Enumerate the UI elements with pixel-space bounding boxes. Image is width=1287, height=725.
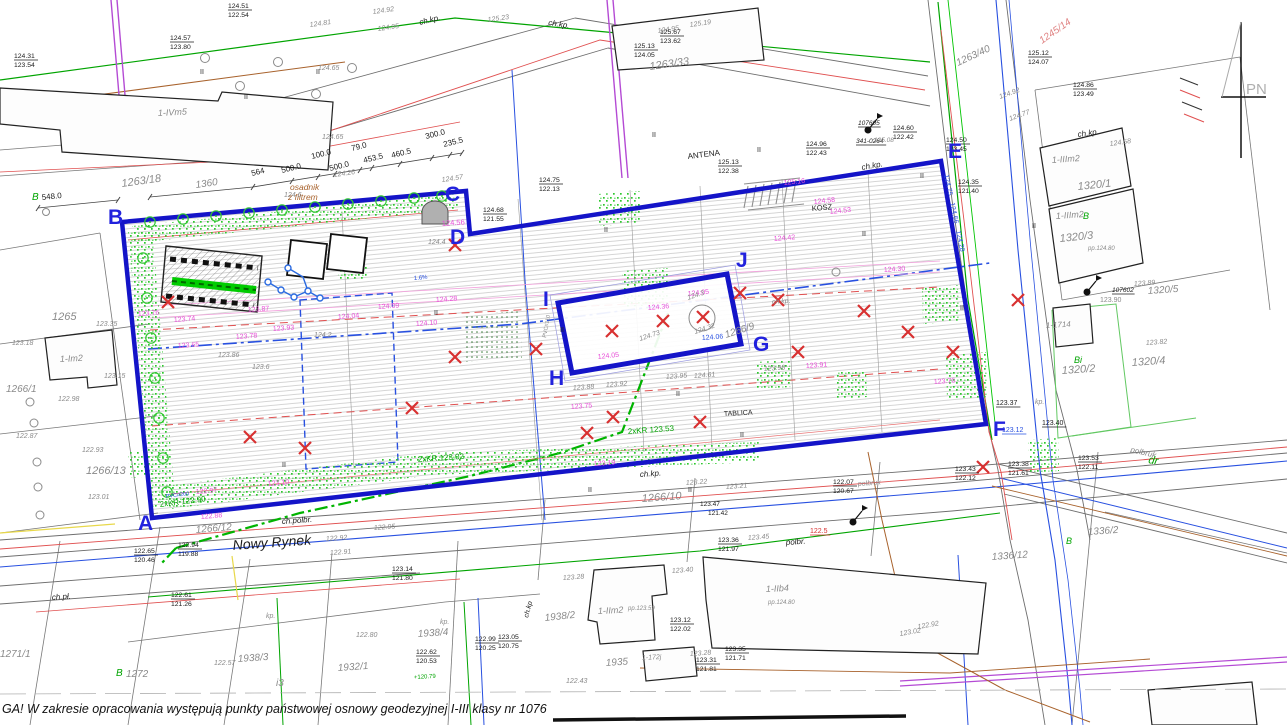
svg-text:122.12: 122.12 (955, 475, 976, 482)
elevation-pair: 124.57123.80 (170, 35, 194, 51)
survey-map: IIIIIIIIIIIIIIIIIIIIIIIIIIIIIIIIII Nowy … (0, 0, 1287, 725)
map-label: 122.87 (16, 433, 39, 440)
svg-text:+120.79: +120.79 (414, 674, 437, 681)
map-label: 1938/3 (237, 652, 269, 665)
map-note: GA! W zakresie opracowania występują pun… (2, 702, 547, 716)
svg-text:122.93: 122.93 (82, 447, 104, 454)
svg-text:123.43: 123.43 (955, 466, 976, 473)
svg-text:121.42: 121.42 (708, 510, 728, 517)
svg-text:B: B (1066, 536, 1072, 546)
boundary-letter-H: H (549, 367, 564, 390)
svg-text:123.49: 123.49 (1073, 91, 1094, 98)
svg-text:121.55: 121.55 (483, 216, 504, 223)
svg-text:123.54: 123.54 (14, 62, 35, 69)
svg-text:123.80: 123.80 (170, 44, 191, 51)
svg-text:122.88: 122.88 (201, 512, 223, 521)
elevation-pair: 124.35121.40 (958, 179, 982, 195)
svg-text:B: B (1083, 211, 1089, 221)
map-label: 123.21 (726, 483, 748, 491)
svg-text:564: 564 (250, 166, 266, 178)
svg-text:dr: dr (1147, 454, 1160, 468)
svg-text:1266/10: 1266/10 (641, 490, 682, 505)
svg-text:123.92: 123.92 (606, 381, 628, 389)
map-label: kp. (440, 619, 449, 626)
map-label: ch.kp. (548, 18, 570, 30)
svg-text:123.35: 123.35 (725, 646, 746, 653)
boundary-letter-G: G (753, 333, 769, 356)
boundary-letter-A: A (138, 512, 153, 535)
svg-text:235.5: 235.5 (442, 135, 464, 149)
map-label: Bi (1074, 355, 1083, 365)
svg-text:124.95: 124.95 (377, 23, 399, 33)
svg-text:122.11: 122.11 (1078, 464, 1099, 471)
svg-text:ch.pł.: ch.pł. (52, 592, 72, 602)
survey-point-icon (1084, 275, 1103, 296)
map-label: 123.74 (174, 316, 196, 324)
svg-text:124.09: 124.09 (378, 303, 400, 311)
svg-text:1272: 1272 (126, 669, 149, 680)
map-label: 1266/10 (641, 490, 682, 505)
elevation-pair: 123.31121.81 (696, 657, 720, 673)
svg-text:121.81: 121.81 (696, 666, 717, 673)
map-label: PN (1246, 81, 1267, 98)
map-label: 1-IIb4 (766, 583, 790, 594)
map-label: 124.28 (436, 296, 458, 304)
elevation-pair: 124.51122.54 (228, 3, 252, 19)
manhole-icon (236, 82, 245, 91)
ii-mark: II (920, 173, 924, 180)
map-label: 1-172j (642, 654, 662, 662)
manhole-icon (30, 419, 38, 427)
map-label: 453.5 (362, 151, 384, 165)
map-label: 123.40 (672, 567, 694, 575)
map-label: 124.6 (284, 192, 302, 199)
elevation-pair: 123.35121.71 (725, 646, 749, 662)
map-label: B (32, 192, 39, 203)
elevation-pair: 122.07120.67 (833, 479, 857, 495)
svg-text:1935: 1935 (605, 656, 628, 669)
svg-text:124.30: 124.30 (884, 266, 906, 274)
svg-text:1266/1: 1266/1 (6, 384, 37, 395)
svg-text:123.76: 123.76 (138, 310, 160, 318)
svg-text:124.2: 124.2 (314, 332, 332, 339)
svg-text:122.13: 122.13 (539, 186, 560, 193)
svg-text:1265: 1265 (52, 311, 77, 323)
map-label: 123.18 (12, 340, 34, 347)
svg-text:polbr.: polbr. (785, 537, 806, 547)
elevation-pair: 123.53122.11 (1078, 455, 1102, 471)
map-label: 1263/18 (121, 172, 163, 190)
boundary-letter-B: B (108, 206, 123, 229)
map-label: 107602 (1112, 287, 1135, 294)
map-label: ch.polbr. (282, 515, 313, 526)
map-label: 460.5 (390, 146, 412, 160)
map-label: 124.2 (314, 332, 332, 339)
svg-text:123.18: 123.18 (12, 340, 34, 347)
svg-text:123.98: 123.98 (764, 365, 786, 373)
map-label: 123.19 (594, 460, 616, 468)
elevation-pair: 124.68121.55 (483, 207, 507, 223)
svg-text:123.88: 123.88 (573, 384, 595, 392)
map-label: 123.47 (700, 501, 720, 508)
svg-text:ch.kp.: ch.kp. (772, 298, 791, 306)
svg-text:124.05: 124.05 (634, 52, 655, 59)
map-label: 123.76 (138, 310, 160, 318)
svg-text:122.91: 122.91 (330, 549, 352, 557)
svg-text:121.26: 121.26 (171, 601, 192, 608)
svg-text:121.71: 121.71 (725, 655, 746, 662)
svg-text:120.53: 120.53 (416, 658, 437, 665)
svg-text:107605: 107605 (858, 120, 880, 127)
svg-text:122.61: 122.61 (171, 592, 192, 599)
map-label: 124.10 (416, 320, 438, 328)
map-label: 122.57 (214, 660, 237, 667)
svg-text:124.65: 124.65 (318, 65, 340, 72)
map-label: 122.80 (356, 632, 378, 639)
svg-text:ch.polbr.: ch.polbr. (282, 515, 313, 526)
map-label: 123.90 (1100, 297, 1122, 304)
svg-text:1336/12: 1336/12 (991, 549, 1028, 563)
manhole-icon (312, 90, 321, 99)
manhole-icon (36, 511, 44, 519)
map-label: 123.76 (934, 378, 956, 386)
svg-text:1938/4: 1938/4 (417, 627, 449, 640)
svg-text:107602: 107602 (1112, 287, 1134, 294)
svg-text:Nowy Rynek: Nowy Rynek (232, 531, 313, 553)
svg-text:125.12: 125.12 (1028, 50, 1049, 57)
svg-text:122.43: 122.43 (566, 678, 588, 685)
svg-text:122.42: 122.42 (893, 134, 914, 141)
ii-mark: II (960, 305, 964, 312)
svg-text:123.45: 123.45 (748, 534, 770, 542)
svg-text:ch.kp.: ch.kp. (640, 469, 662, 479)
svg-text:kp.: kp. (1035, 399, 1044, 406)
svg-text:ch.kp.: ch.kp. (418, 13, 441, 27)
thick-border-line (553, 716, 906, 720)
dimension-tick (398, 161, 402, 167)
map-label: 123.78 (236, 333, 258, 341)
elevation-pair: 122.99120.25 (475, 636, 499, 652)
svg-text:123.6: 123.6 (252, 364, 270, 371)
map-label: 1266/13 (86, 465, 127, 477)
elevation-pair: 124.96122.43 (806, 141, 830, 157)
svg-text:125.13: 125.13 (634, 43, 655, 50)
map-label: ANTENA (687, 148, 721, 161)
map-label: 123.6 (252, 364, 270, 371)
ii-mark: II (757, 147, 761, 154)
ii-mark: II (862, 231, 866, 238)
svg-text:1-IVm5: 1-IVm5 (158, 106, 188, 118)
map-label: 122.98 (58, 396, 80, 403)
svg-text:124.57: 124.57 (170, 35, 191, 42)
map-label: 124.81 (309, 19, 331, 29)
svg-text:kp.: kp. (440, 619, 449, 626)
svg-text:1-IIIm2: 1-IIIm2 (1055, 209, 1084, 221)
svg-text:121.80: 121.80 (392, 575, 413, 582)
svg-text:125.08: 125.08 (874, 137, 894, 144)
map-label: 123.75 (571, 403, 593, 411)
manhole-icon (34, 483, 42, 491)
svg-text:122.92: 122.92 (326, 535, 348, 543)
small-building-1 (287, 240, 327, 279)
map-label: 122.92 (326, 535, 348, 543)
svg-text:124.31: 124.31 (14, 53, 35, 60)
svg-text:122.98: 122.98 (58, 396, 80, 403)
svg-text:124.81: 124.81 (309, 19, 331, 29)
boundary-letter-C: C (445, 183, 460, 206)
svg-text:1938/3: 1938/3 (237, 652, 269, 665)
svg-text:ch.kp: ch.kp (523, 600, 534, 618)
map-label: 123.65 (178, 342, 200, 350)
svg-text:1245/14: 1245/14 (1037, 16, 1073, 46)
boundary-letter-I: I (543, 288, 549, 311)
map-label: 123.37 (996, 400, 1020, 407)
svg-text:121.97: 121.97 (718, 546, 739, 553)
ii-mark: II (652, 132, 656, 139)
map-label: B (116, 668, 123, 679)
svg-text:122.95: 122.95 (374, 524, 396, 532)
svg-text:123.53: 123.53 (1078, 455, 1099, 462)
svg-text:125.67: 125.67 (660, 29, 681, 36)
ii-mark: II (200, 69, 204, 76)
map-label: 1-1714 (1046, 320, 1072, 330)
boundary-letter-J: J (736, 249, 748, 272)
svg-text:1336/2: 1336/2 (1087, 525, 1119, 538)
svg-text:125.13: 125.13 (718, 159, 739, 166)
map-label: 123.40 (1042, 420, 1066, 427)
svg-text:123.36: 123.36 (718, 537, 739, 544)
svg-text:Bi: Bi (1074, 355, 1083, 365)
map-label: 1-IIm2 (598, 605, 624, 616)
svg-text:1-Im2: 1-Im2 (60, 353, 84, 364)
svg-text:300.0: 300.0 (424, 127, 446, 141)
manhole-icon (33, 458, 41, 466)
map-label: 1320/4 (1131, 355, 1165, 369)
map-label: 123.86 (218, 352, 240, 359)
ii-mark: II (604, 227, 608, 234)
map-label: kp. (266, 613, 275, 620)
svg-text:123.90: 123.90 (1100, 297, 1122, 304)
elevation-pair: 124.75122.13 (539, 177, 563, 193)
svg-text:124.75: 124.75 (539, 177, 560, 184)
map-label: 122.95 (374, 524, 396, 532)
ii-mark: II (676, 391, 680, 398)
svg-text:123.93: 123.93 (273, 325, 295, 333)
svg-text:123.95: 123.95 (666, 373, 688, 381)
ii-mark: II (1032, 223, 1036, 230)
svg-text:osadnik: osadnik (290, 182, 320, 192)
map-label: 124.4 (428, 239, 446, 246)
map-label: ch.kp. (772, 298, 791, 306)
svg-text:124.51: 124.51 (228, 3, 249, 10)
svg-text:122.99: 122.99 (475, 636, 496, 643)
elevation-pair: 122.94119.88 (178, 542, 202, 558)
map-label: dr (1147, 454, 1160, 468)
edge-strokes (1180, 78, 1204, 122)
map-label: 124.61 (694, 372, 716, 380)
map-label: 1265 (52, 311, 77, 323)
svg-text:123.19: 123.19 (594, 460, 616, 468)
svg-text:pp.123.59: pp.123.59 (627, 606, 655, 612)
boundary-letter-F: F (993, 418, 1006, 441)
svg-text:124.68: 124.68 (483, 207, 504, 214)
svg-text:pp.124.80: pp.124.80 (1087, 246, 1115, 252)
svg-text:122.38: 122.38 (718, 168, 739, 175)
svg-text:i3: i3 (276, 678, 284, 689)
svg-text:1-IIb4: 1-IIb4 (766, 583, 790, 594)
map-label: 124.65 (318, 65, 340, 72)
svg-text:1-172j: 1-172j (642, 654, 662, 662)
svg-text:124.04: 124.04 (338, 313, 360, 321)
map-label: 125.08 (874, 137, 894, 144)
svg-text:120.25: 120.25 (475, 645, 496, 652)
map-label: B (1083, 211, 1089, 221)
svg-text:B: B (32, 192, 39, 203)
map-label: 123.87 (248, 306, 270, 314)
map-label: 124.06 (702, 334, 724, 342)
svg-text:124.4: 124.4 (428, 239, 446, 246)
svg-text:123.75: 123.75 (571, 403, 593, 411)
map-label: 124.65 (322, 134, 344, 141)
svg-text:123.12: 123.12 (670, 617, 691, 624)
map-label: 123.15 (104, 373, 126, 380)
map-label: 107605 (858, 120, 881, 127)
svg-text:120.67: 120.67 (833, 488, 854, 495)
svg-text:1-IIm2: 1-IIm2 (598, 605, 624, 616)
map-label: 1271/1 (0, 649, 31, 660)
map-label: 564 (250, 166, 266, 178)
ii-mark: II (244, 94, 248, 101)
elevation-pair: 124.60122.42 (893, 125, 917, 141)
svg-text:123.05: 123.05 (498, 634, 519, 641)
svg-text:123.78: 123.78 (236, 333, 258, 341)
svg-text:119.88: 119.88 (178, 551, 199, 558)
map-label: 1932/1 (337, 661, 368, 674)
map-label: B (1066, 536, 1072, 546)
map-label: 1266/1 (6, 384, 37, 395)
svg-text:123.14: 123.14 (392, 566, 413, 573)
svg-text:122.80: 122.80 (356, 632, 378, 639)
svg-text:548.0: 548.0 (41, 191, 62, 202)
map-label: osadnik (290, 182, 320, 192)
svg-text:123.47: 123.47 (700, 501, 720, 508)
svg-text:122.43: 122.43 (806, 150, 827, 157)
map-label: ch.kp (523, 600, 534, 618)
small-building-2 (327, 234, 367, 273)
map-canvas: IIIIIIIIIIIIIIIIIIIIIIIIIIIIIIIIII Nowy … (0, 0, 1287, 725)
svg-text:123.65: 123.65 (178, 342, 200, 350)
ii-mark: II (688, 487, 692, 494)
ii-mark: II (740, 432, 744, 439)
map-label: 123.45 (748, 534, 770, 542)
map-label: 123.98 (764, 365, 786, 373)
elevation-pair: 123.36121.97 (718, 537, 742, 553)
svg-text:1263/40: 1263/40 (955, 43, 993, 68)
svg-text:123.38: 123.38 (1008, 461, 1029, 468)
svg-text:120.75: 120.75 (498, 643, 519, 650)
map-label: 122.91 (330, 549, 352, 557)
boundary-letter-D: D (450, 226, 465, 249)
boundary-letter-E: E (948, 140, 962, 163)
map-label: 123.93 (273, 325, 295, 333)
map-label: 1263/40 (955, 43, 993, 68)
map-label: 124.04 (338, 313, 360, 321)
map-label: 122.88 (201, 512, 223, 521)
elevation-pair: 123.12122.02 (670, 617, 694, 633)
elevation-pair: 124.31123.54 (14, 53, 38, 69)
map-label: 1336/12 (991, 549, 1028, 563)
svg-text:122.57: 122.57 (214, 660, 237, 667)
map-label: 123.22 (686, 479, 708, 487)
svg-text:124.28: 124.28 (436, 296, 458, 304)
map-label: Nowy Rynek (232, 531, 313, 553)
svg-text:123.40: 123.40 (672, 567, 694, 575)
svg-text:124.61: 124.61 (694, 372, 716, 380)
svg-text:124.92: 124.92 (372, 6, 394, 16)
svg-text:123.22: 123.22 (686, 479, 708, 487)
map-label: i3 (276, 678, 284, 689)
svg-text:123.31: 123.31 (696, 657, 717, 664)
svg-text:124.35: 124.35 (958, 179, 979, 186)
svg-text:122.65: 122.65 (134, 548, 155, 555)
svg-text:123.76: 123.76 (934, 378, 956, 386)
elevation-pair: 125.13122.38 (718, 159, 742, 175)
map-label: 235.5 (442, 135, 464, 149)
svg-text:1271/1: 1271/1 (0, 649, 31, 660)
ii-mark: II (434, 310, 438, 317)
map-label: 123.88 (573, 384, 595, 392)
map-label: ch.kp. (418, 13, 441, 27)
svg-text:453.5: 453.5 (362, 151, 384, 165)
map-label: 1.6% (414, 275, 429, 282)
svg-text:1266/13: 1266/13 (86, 465, 127, 477)
svg-text:124.86: 124.86 (1073, 82, 1094, 89)
svg-text:123.87: 123.87 (248, 306, 270, 314)
svg-text:124.07: 124.07 (1028, 59, 1049, 66)
svg-text:1.6%: 1.6% (414, 275, 429, 282)
map-label: 122.43 (566, 678, 588, 685)
svg-text:123.40: 123.40 (1042, 420, 1064, 427)
manhole-icon (348, 64, 357, 73)
map-label: 123.01 (88, 494, 110, 501)
svg-text:ch.kp.: ch.kp. (548, 18, 570, 30)
svg-text:B: B (116, 668, 123, 679)
svg-text:124.96: 124.96 (806, 141, 827, 148)
survey-point-icon (850, 505, 869, 526)
map-label: 124.09 (378, 303, 400, 311)
manhole-icon (274, 58, 283, 67)
svg-text:1-1714: 1-1714 (1046, 320, 1072, 330)
map-label: 1-IVm5 (158, 106, 188, 118)
map-label: 1-IIIm2 (1055, 209, 1084, 221)
svg-text:123.82: 123.82 (1146, 339, 1168, 347)
map-label: 123.28 (563, 574, 585, 582)
svg-text:ANTENA: ANTENA (687, 148, 721, 161)
red-cross-icon (1012, 294, 1024, 306)
svg-text:122.54: 122.54 (228, 12, 249, 19)
map-label: ch.kp. (640, 469, 662, 479)
map-label: 1360 (195, 177, 219, 191)
svg-text:123.89: 123.89 (1134, 280, 1156, 288)
map-label: 1938/4 (417, 627, 449, 640)
svg-text:123.35: 123.35 (96, 321, 118, 328)
map-label: ch.pł. (52, 592, 72, 602)
svg-text:122.87: 122.87 (16, 433, 39, 440)
elevation-pair: 123.05120.75 (498, 634, 522, 650)
svg-text:123.91: 123.91 (806, 362, 828, 370)
svg-text:123.86: 123.86 (218, 352, 240, 359)
svg-text:123.74: 123.74 (174, 316, 196, 324)
